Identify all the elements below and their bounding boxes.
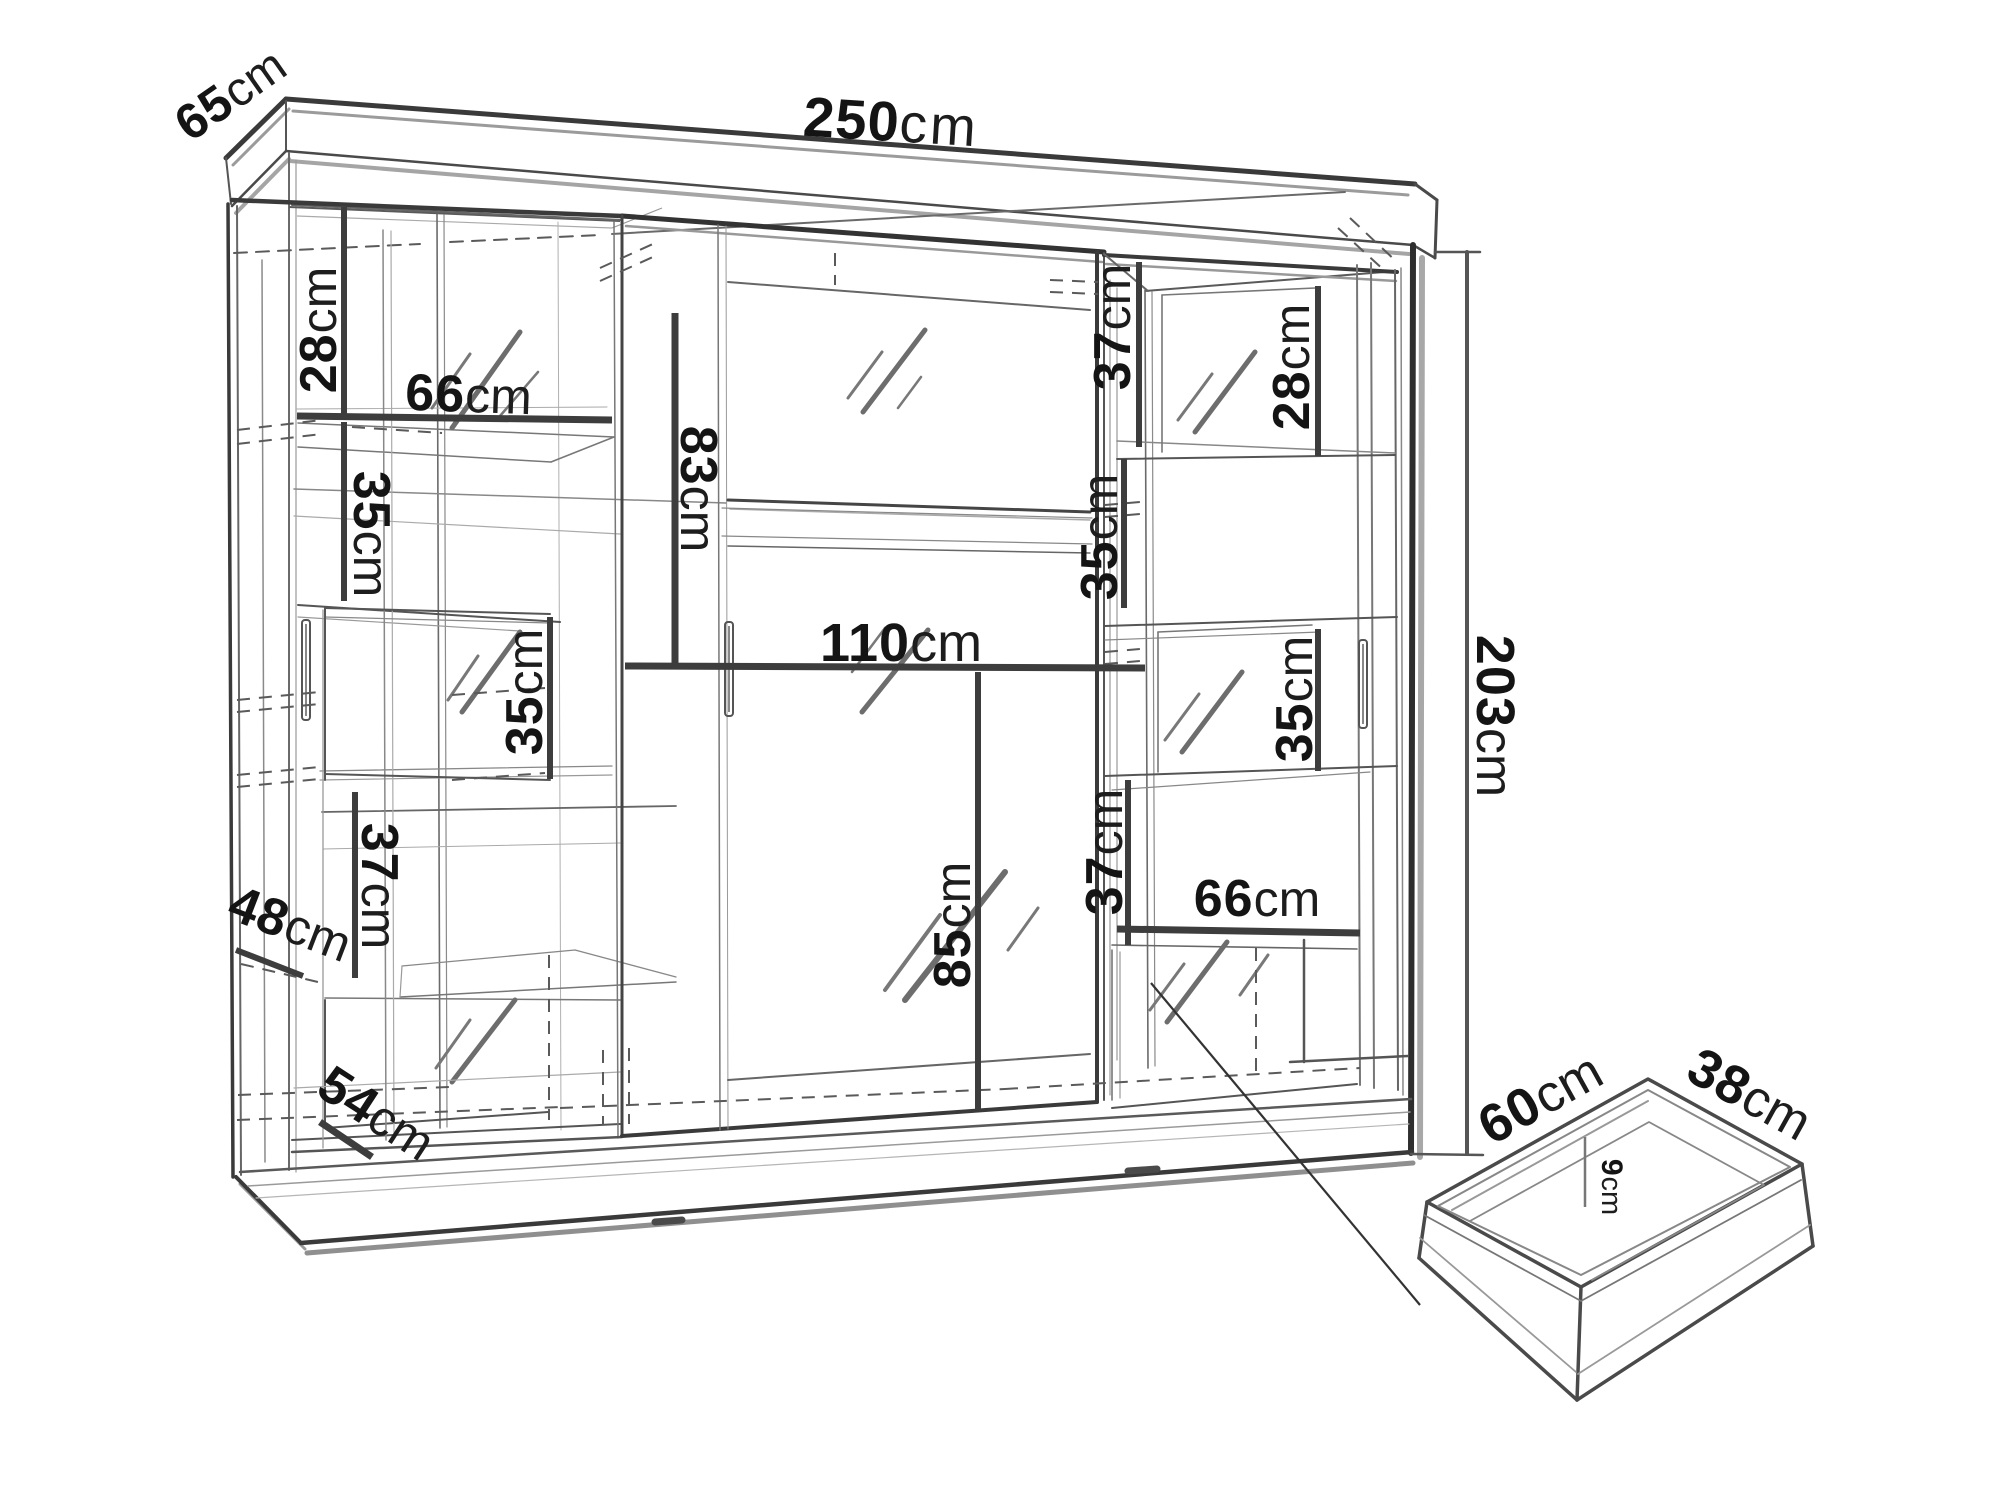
svg-text:37cm: 37cm	[350, 823, 408, 950]
svg-text:35cm: 35cm	[342, 471, 400, 598]
svg-text:66cm: 66cm	[1194, 870, 1321, 928]
svg-text:28cm: 28cm	[290, 267, 348, 394]
svg-text:35cm: 35cm	[1266, 636, 1324, 763]
svg-text:9cm: 9cm	[1595, 1159, 1628, 1215]
svg-text:66cm: 66cm	[404, 364, 532, 426]
svg-text:37cm: 37cm	[1084, 264, 1142, 391]
svg-text:250cm: 250cm	[802, 85, 981, 159]
svg-text:85cm: 85cm	[924, 862, 982, 989]
svg-text:203cm: 203cm	[1465, 635, 1525, 797]
svg-text:35cm: 35cm	[496, 629, 554, 756]
svg-text:37cm: 37cm	[1076, 789, 1134, 916]
svg-text:35cm: 35cm	[1071, 474, 1129, 601]
svg-text:28cm: 28cm	[1263, 304, 1321, 431]
svg-text:83cm: 83cm	[669, 426, 727, 553]
svg-text:110cm: 110cm	[820, 613, 982, 673]
